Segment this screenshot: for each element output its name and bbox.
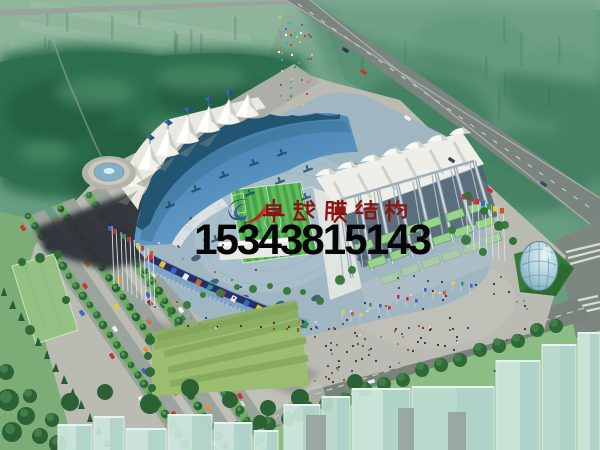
svg-text:15343815143: 15343815143 (194, 217, 431, 264)
